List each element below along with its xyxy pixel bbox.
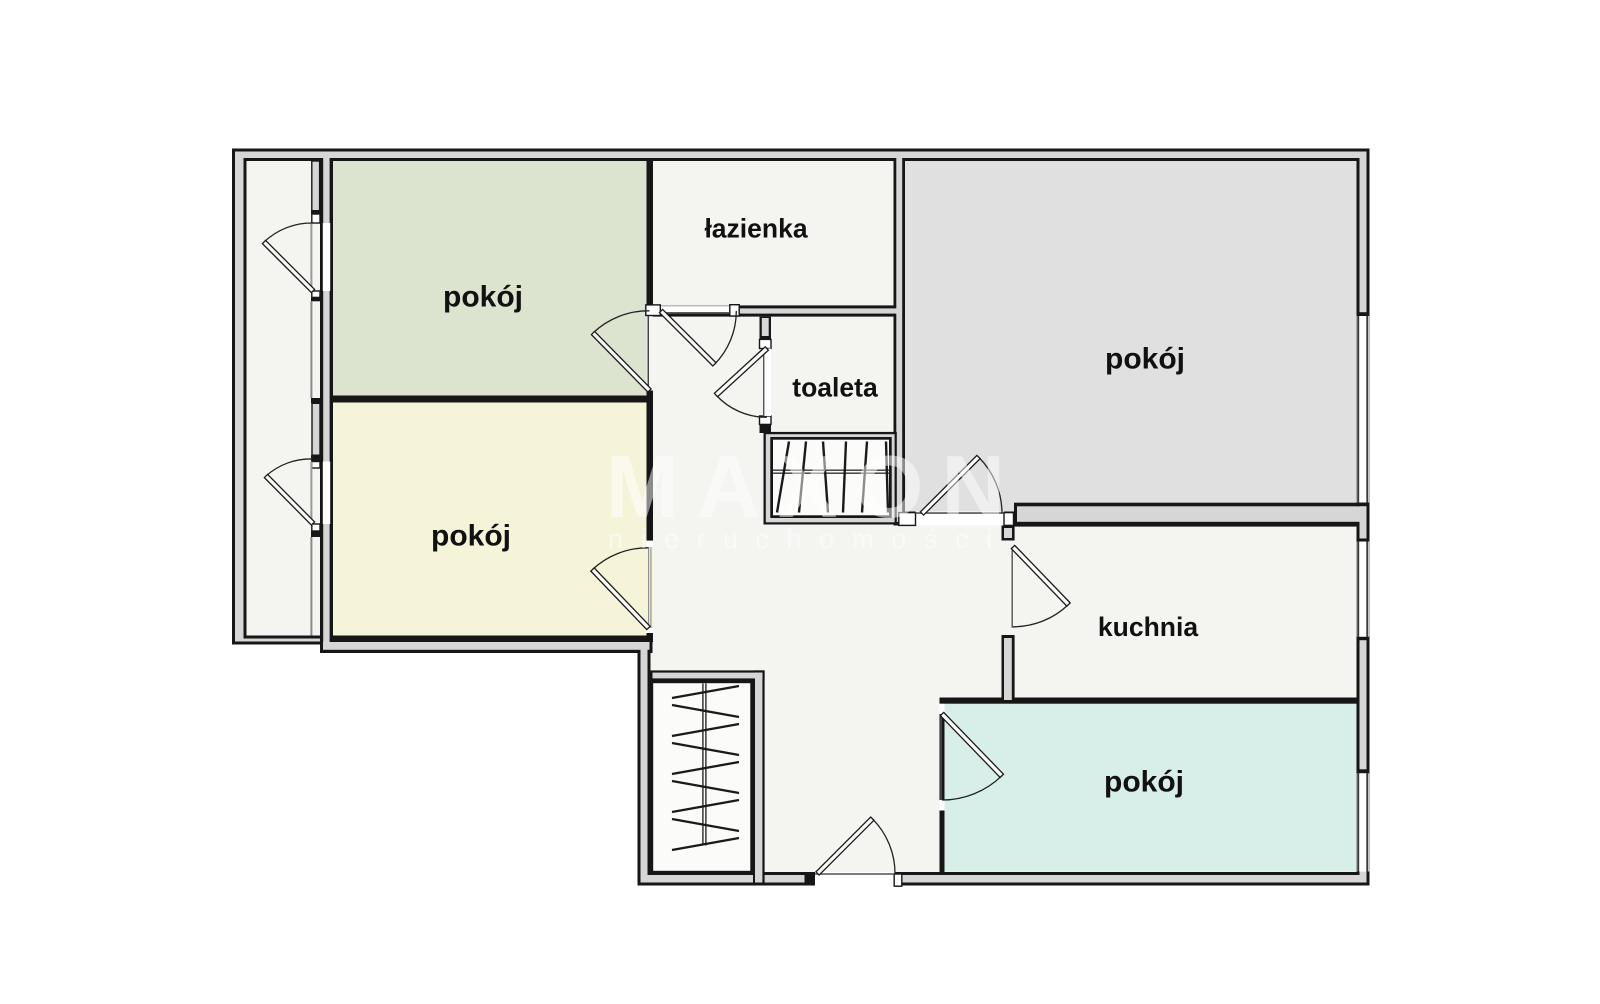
svg-text:łazienka: łazienka xyxy=(704,214,807,244)
svg-text:nieruchomości: nieruchomości xyxy=(608,524,1010,554)
svg-text:pokój: pokój xyxy=(443,281,523,314)
svg-text:toaleta: toaleta xyxy=(792,373,878,403)
svg-text:MAXON: MAXON xyxy=(606,437,1024,536)
svg-text:pokój: pokój xyxy=(431,520,511,553)
svg-text:kuchnia: kuchnia xyxy=(1098,612,1198,642)
svg-text:pokój: pokój xyxy=(1104,766,1184,799)
svg-text:pokój: pokój xyxy=(1105,343,1185,376)
